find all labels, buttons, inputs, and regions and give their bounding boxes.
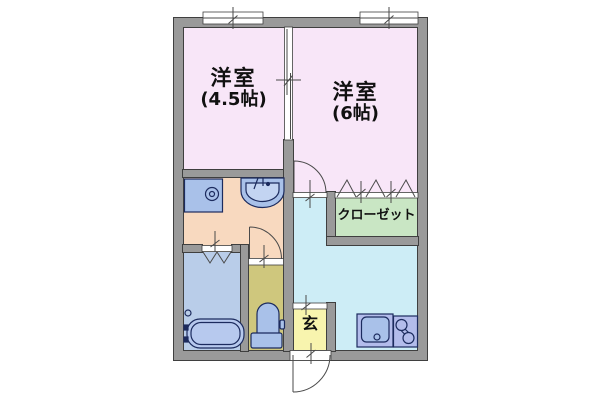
wall-bathroom-top-left	[183, 245, 202, 252]
wall-entrance-stub	[327, 303, 335, 351]
wall-closet-bottom	[327, 237, 418, 245]
wall-center-spine	[284, 140, 293, 351]
entrance-label: 玄	[293, 315, 327, 333]
wall-bathroom-toilet	[241, 245, 248, 351]
wall-room1-bottom	[183, 170, 284, 177]
room2-size: (6帖)	[293, 104, 418, 125]
room1-label: 洋室 (4.5帖)	[183, 66, 284, 111]
room1-name: 洋室	[183, 66, 284, 90]
floorplan-canvas: 洋室 (4.5帖) 洋室 (6帖) クローゼット 玄	[0, 0, 600, 400]
closet-label: クローゼット	[335, 209, 418, 224]
room2-name: 洋室	[293, 80, 418, 104]
room2-label: 洋室 (6帖)	[293, 80, 418, 125]
room1-size: (4.5帖)	[183, 90, 284, 111]
